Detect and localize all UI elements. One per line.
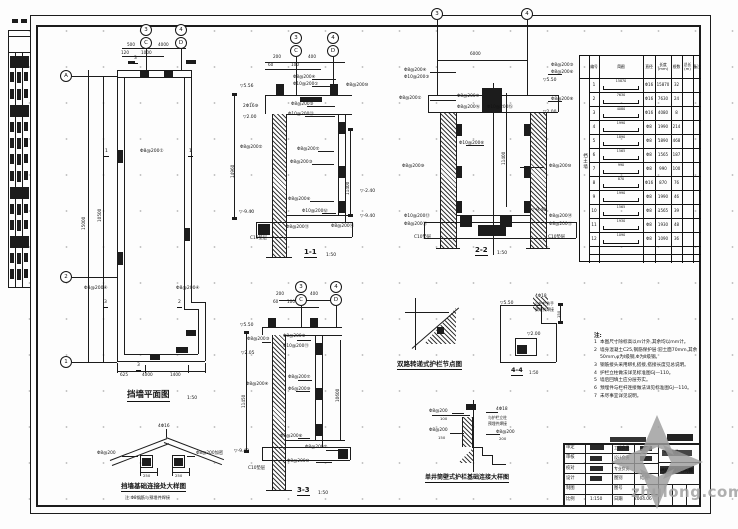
annotation-text: 625 bbox=[120, 373, 128, 377]
decor-line bbox=[8, 287, 31, 288]
decor-line bbox=[17, 72, 22, 83]
decor-line bbox=[256, 237, 352, 238]
annotation-text: 1000 bbox=[141, 51, 152, 55]
annotation-text: Φ8@200⑭ bbox=[331, 225, 354, 229]
rebar-length: 870 bbox=[655, 176, 671, 190]
decor-line bbox=[310, 201, 334, 202]
annotation-text: Φ8@200④ bbox=[404, 69, 426, 73]
decor-line bbox=[198, 309, 199, 354]
annotation-text: 11400 bbox=[346, 182, 350, 195]
decor-line bbox=[256, 222, 257, 237]
decor-line: 墙身混凝土C25,钢筋保护层:迎土面70mm,其余50mm,φ为Ⅰ级钢,Φ为Ⅱ级… bbox=[600, 348, 698, 362]
annotation-text: Φ8@200④ bbox=[176, 287, 200, 292]
annotation-text: 100 bbox=[440, 417, 447, 421]
annotation-text: 1 bbox=[104, 150, 109, 157]
annotation-text: 预埋件焊接 bbox=[488, 422, 507, 426]
decor-line bbox=[590, 476, 602, 481]
elevation-marker: ▽-9.40 bbox=[234, 450, 249, 455]
decor-line bbox=[30, 30, 31, 288]
decor-line bbox=[460, 216, 472, 227]
decor-line bbox=[117, 70, 118, 361]
decor-line bbox=[558, 303, 563, 306]
decor-line bbox=[478, 225, 506, 236]
annotation-text: Φ8@200⑩ bbox=[346, 84, 368, 88]
decor-line bbox=[279, 307, 319, 308]
decor-line bbox=[172, 468, 173, 476]
decor-line bbox=[456, 201, 462, 213]
watermark-text: zhulong.com bbox=[631, 483, 738, 501]
decor-line bbox=[556, 323, 557, 362]
decor-line bbox=[440, 112, 441, 248]
decor-line bbox=[589, 246, 701, 247]
annotation-text: Φ10@200⑪ bbox=[288, 113, 314, 117]
decor-line bbox=[482, 447, 483, 455]
decor-line bbox=[24, 138, 29, 147]
rebar-length: 1930 bbox=[655, 218, 671, 232]
decor-line bbox=[117, 361, 205, 362]
decor-line bbox=[450, 433, 464, 434]
annotation-text: Φ8@200② bbox=[240, 146, 262, 150]
rebar-sketch: 870 bbox=[599, 176, 643, 190]
rebar-total bbox=[682, 162, 693, 176]
annotation-text: 200 bbox=[276, 292, 284, 296]
decor-line bbox=[205, 363, 206, 373]
annotation-text: 2 bbox=[177, 301, 182, 308]
elevation-marker: ▽2.00 bbox=[527, 333, 540, 338]
rebar-diameter: Φ8 bbox=[643, 148, 655, 162]
grid-bubble: 3 bbox=[431, 8, 443, 20]
decor-line bbox=[350, 447, 351, 460]
decor-line bbox=[186, 60, 196, 64]
tb-label: 审核 bbox=[566, 456, 575, 460]
annotation-text: Φ8@200 bbox=[429, 429, 448, 433]
rebar-total bbox=[682, 218, 693, 232]
elevation-marker: ▽5.50 bbox=[500, 302, 513, 307]
row-number: 1 bbox=[589, 78, 599, 92]
decor-line bbox=[530, 112, 546, 248]
decor-line bbox=[140, 70, 149, 77]
section-1-1-caption: 1-1 bbox=[304, 249, 317, 258]
table-header: 简图 bbox=[599, 56, 643, 78]
rebar-length: 1990 bbox=[655, 190, 671, 204]
annotation-text: Φ8@200⑤ bbox=[291, 103, 313, 107]
grid-bubble: A bbox=[60, 70, 72, 82]
decor-line bbox=[124, 77, 125, 354]
decor-line bbox=[17, 89, 22, 100]
elevation-marker: ▽5.50 bbox=[543, 79, 556, 84]
decor-line bbox=[24, 72, 29, 81]
decor-line bbox=[272, 237, 273, 257]
rebar-diameter: Φ8 bbox=[643, 190, 655, 204]
decor-line bbox=[10, 253, 15, 263]
rebar-count: 24 bbox=[671, 92, 682, 106]
grid-bubble: 1 bbox=[60, 356, 72, 368]
decor-line bbox=[437, 20, 438, 95]
decor-line bbox=[312, 79, 336, 80]
elevation-marker: ▽2.00 bbox=[543, 111, 556, 116]
annotation-text: 14960 bbox=[231, 165, 235, 178]
decor-line bbox=[17, 171, 22, 182]
decor-line bbox=[318, 151, 334, 152]
annotation-text: Φ10@200⑧ bbox=[459, 142, 484, 146]
decor-line bbox=[315, 424, 322, 436]
decor-line bbox=[10, 236, 29, 248]
decor-line bbox=[142, 458, 151, 466]
decor-line bbox=[330, 84, 338, 95]
rebar-count: 76 bbox=[671, 176, 682, 190]
rebar-sketch: 990 bbox=[599, 162, 643, 176]
decor-line bbox=[338, 201, 345, 213]
decor-line bbox=[286, 215, 352, 216]
table-header: 根数 bbox=[671, 56, 682, 78]
note-item: 5墙后回填土应分层夯实。 bbox=[594, 378, 698, 385]
decor-line: 1890 bbox=[599, 135, 643, 139]
decor-line bbox=[174, 458, 183, 466]
decor-line bbox=[500, 362, 556, 363]
annotation-text: 1400 bbox=[170, 373, 181, 377]
notes-block: 注: 1本图尺寸除标高以m计外,其余均以mm计。2墙身混凝土C25,钢筋保护层:… bbox=[594, 331, 698, 401]
decor-line bbox=[524, 124, 530, 136]
decor-line bbox=[17, 138, 22, 149]
decor-line bbox=[603, 170, 639, 174]
decor-line bbox=[558, 321, 563, 324]
decor-line bbox=[10, 105, 29, 117]
annotation-text: Φ8@200⑫ bbox=[549, 223, 572, 227]
annotation-text: 4000 bbox=[158, 43, 169, 47]
table-header: 长度(mm) bbox=[655, 56, 671, 78]
rebar-count: 100 bbox=[671, 162, 682, 176]
decor-line bbox=[157, 468, 158, 476]
annotation-text: Φ8@200⑨ bbox=[402, 165, 424, 169]
decor-line bbox=[21, 19, 27, 23]
decor-line bbox=[24, 253, 29, 262]
decor-line bbox=[17, 154, 22, 165]
decor-line bbox=[530, 112, 531, 248]
decor-line bbox=[456, 166, 462, 178]
decor-line: 1990 bbox=[599, 191, 643, 195]
decor-line bbox=[17, 122, 22, 133]
annotation-text: Φ8@200③ bbox=[247, 338, 269, 342]
grid-bubble: 3 bbox=[290, 32, 302, 44]
decor-line bbox=[117, 77, 191, 78]
rebar-diameter: Φ8 bbox=[643, 134, 655, 148]
rebar-total bbox=[682, 120, 693, 134]
annotation-text: Φ8@200④ bbox=[293, 76, 315, 80]
annotation-text: 10600 bbox=[336, 389, 340, 402]
rebar-sketch: 1565 bbox=[599, 148, 643, 162]
rebar-diameter: Φ16 bbox=[643, 176, 655, 190]
decor-line bbox=[482, 455, 492, 456]
annotation-text: Φ8@200⑥ bbox=[280, 435, 302, 439]
decor-line bbox=[191, 302, 205, 303]
annotation-text: Φ8@200⑦ bbox=[288, 376, 310, 380]
row-number: 12 bbox=[589, 232, 599, 246]
rebar-total bbox=[682, 176, 693, 190]
section-2-2-caption: 2-2 bbox=[475, 247, 488, 256]
decor-line bbox=[520, 167, 544, 168]
decor-line: 870 bbox=[599, 177, 643, 181]
rebar-total bbox=[682, 92, 693, 106]
rebar-total bbox=[682, 232, 693, 246]
decor-line bbox=[186, 330, 196, 336]
rebar-count: 468 bbox=[671, 134, 682, 148]
note-item: 4护栏立柱做法详见标准图GJ—110。 bbox=[594, 371, 698, 378]
annotation-text: Φ8@200⑧ bbox=[551, 98, 573, 102]
annotation-text: 3 bbox=[103, 301, 108, 308]
decor-line bbox=[262, 447, 263, 460]
rebar-sketch: 7630 bbox=[599, 92, 643, 106]
decor-line bbox=[10, 220, 15, 230]
annotation-text: 15000 bbox=[82, 217, 86, 230]
decor-line bbox=[12, 19, 18, 23]
annotation-text: 11400 bbox=[502, 152, 506, 165]
grid-bubble: 4 bbox=[327, 32, 339, 44]
decor-line bbox=[164, 70, 173, 77]
decor-line bbox=[266, 490, 292, 491]
decor-line bbox=[348, 214, 353, 217]
decor-line bbox=[603, 198, 639, 202]
note-item: 1本图尺寸除标高以m计外,其余均以mm计。 bbox=[594, 340, 698, 347]
decor-line bbox=[181, 49, 182, 70]
decor-line: 7630 bbox=[599, 93, 643, 97]
decor-line bbox=[336, 306, 337, 327]
annotation-text: Φ8@200 bbox=[429, 410, 448, 414]
rebar-length: 1090 bbox=[655, 232, 671, 246]
row-number: 10 bbox=[589, 204, 599, 218]
annotation-text: Φ10@200⑮ bbox=[487, 106, 513, 110]
annotation-text: 200 bbox=[499, 437, 506, 441]
decor-line bbox=[15, 52, 16, 287]
grid-bubble: C bbox=[140, 37, 152, 49]
decor-line bbox=[262, 327, 263, 335]
annotation-text: 预埋件焊接 bbox=[535, 308, 554, 312]
decor-line bbox=[517, 345, 527, 354]
rebar-total bbox=[682, 190, 693, 204]
rebar-count: 32 bbox=[671, 78, 682, 92]
annotation-text: 150 bbox=[438, 436, 445, 440]
rebar-schedule-table: 挡土墙 编号简图直径长度(mm)根数总长(m)备注115870Φ16158703… bbox=[579, 55, 700, 262]
row-number: 3 bbox=[589, 106, 599, 120]
tb-label: 设计 bbox=[566, 477, 575, 481]
decor-line bbox=[24, 269, 29, 278]
decor-line bbox=[265, 62, 345, 63]
annotation-text: 100 bbox=[291, 63, 299, 67]
annotation-text: 120 bbox=[121, 51, 129, 55]
annotation-text: Φ8@200⑭ bbox=[549, 215, 572, 219]
notes-header: 注: bbox=[594, 331, 698, 339]
annotation-text: 4Φ16 bbox=[158, 425, 170, 429]
decor-line bbox=[10, 72, 15, 82]
grid-bubble: 3 bbox=[140, 24, 152, 36]
annotation-text: 3 bbox=[136, 364, 141, 371]
grid-bubble: C bbox=[290, 45, 302, 57]
decor-line bbox=[140, 468, 141, 476]
detail-4-4-caption: 4-4 bbox=[511, 367, 523, 376]
decor-line bbox=[150, 355, 160, 360]
plan-scale: 1:50 bbox=[187, 397, 197, 402]
annotation-text: 200 bbox=[273, 55, 281, 59]
decor-line bbox=[10, 138, 15, 148]
decor-line bbox=[122, 456, 138, 457]
row-number: 8 bbox=[589, 176, 599, 190]
elevation-marker: ▽2.00 bbox=[243, 116, 256, 121]
decor-line bbox=[466, 404, 476, 410]
rebar-length: 1990 bbox=[655, 120, 671, 134]
decor-line bbox=[272, 335, 273, 490]
decor-line bbox=[17, 269, 22, 280]
decor-line bbox=[430, 72, 456, 73]
elevation-marker: ▽5.56 bbox=[240, 85, 253, 90]
decor-line: 预埋件与栏杆连接做法详见标准图GJ—110。 bbox=[600, 386, 692, 393]
decor-line bbox=[350, 130, 351, 217]
decor-line bbox=[345, 114, 346, 222]
row-number: 6 bbox=[589, 148, 599, 162]
decor-line bbox=[258, 224, 270, 235]
decor-line: 未尽事宜详见说明。 bbox=[600, 394, 641, 401]
rebar-length: 1890 bbox=[655, 134, 671, 148]
tb-label: 制图 bbox=[566, 487, 575, 491]
decor-line bbox=[524, 201, 530, 213]
rebar-sketch: 15870 bbox=[599, 78, 643, 92]
rebar-diameter: Φ16 bbox=[643, 92, 655, 106]
decor-line bbox=[603, 184, 639, 188]
annotation-text: 4Φ18 bbox=[496, 408, 508, 412]
grid-bubble: C bbox=[295, 294, 307, 306]
decor-line bbox=[472, 417, 473, 447]
annotation-text: Φ8@200⑪ bbox=[404, 223, 427, 227]
decor-line bbox=[24, 220, 29, 229]
decor-line bbox=[338, 166, 345, 178]
grid-bubble: D bbox=[327, 45, 339, 57]
decor-line bbox=[10, 122, 15, 132]
annotation-text: Φ8@200⑤ bbox=[551, 64, 573, 68]
tb-label: 校对 bbox=[566, 467, 575, 471]
rebar-total bbox=[682, 78, 693, 92]
decor-line bbox=[124, 354, 198, 355]
decor-line bbox=[36, 25, 700, 27]
rebar-count: 48 bbox=[671, 218, 682, 232]
decor-line bbox=[415, 298, 416, 350]
decor-line bbox=[276, 84, 284, 95]
decor-line bbox=[232, 217, 237, 220]
decor-line: 1930 bbox=[599, 219, 643, 223]
detail-left-caption: 挡墙基础连接处大样图 bbox=[121, 483, 186, 492]
annotation-text: Φ8@200① bbox=[140, 150, 164, 155]
annotation-text: 10500 bbox=[98, 209, 102, 222]
decor-line bbox=[430, 100, 456, 101]
decor-line bbox=[36, 25, 38, 506]
decor-line bbox=[185, 228, 190, 241]
decor-line bbox=[472, 447, 482, 448]
rebar-total bbox=[682, 106, 693, 120]
rebar-total bbox=[682, 148, 693, 162]
decor-line bbox=[103, 77, 104, 362]
decor-line bbox=[590, 445, 604, 450]
row-number: 11 bbox=[589, 218, 599, 232]
decor-line bbox=[8, 36, 31, 37]
decor-line bbox=[187, 456, 195, 457]
table-header: 直径 bbox=[643, 56, 655, 78]
detail-node-caption: 双路转递式护栏节点图 bbox=[397, 361, 462, 370]
plan-view bbox=[60, 20, 240, 410]
decor-line: 15870 bbox=[599, 79, 643, 83]
decor-line bbox=[272, 114, 273, 257]
rebar-diameter: Φ8 bbox=[643, 120, 655, 134]
rebar-length: 4080 bbox=[655, 106, 671, 120]
decor-line: 护栏立柱做法详见标准图GJ—110。 bbox=[600, 371, 673, 378]
row-number: 9 bbox=[589, 190, 599, 204]
decor-line: 990 bbox=[599, 163, 643, 167]
annotation-text: 6000 bbox=[470, 52, 481, 56]
elevation-marker: ▽-9.40 bbox=[531, 209, 546, 214]
decor-line bbox=[603, 114, 639, 118]
grid-bubble: 3 bbox=[295, 281, 307, 293]
annotation-text: 400 bbox=[310, 292, 318, 296]
decor-line bbox=[500, 305, 501, 362]
annotation-text: 1:50 bbox=[497, 252, 507, 257]
decor-line bbox=[266, 257, 292, 258]
decor-line bbox=[166, 429, 167, 437]
annotation-text: 500 bbox=[127, 43, 135, 47]
grid-bubble: D bbox=[175, 37, 187, 49]
decor-line bbox=[189, 468, 190, 476]
decor-line bbox=[473, 400, 474, 472]
annotation-text: 11450 bbox=[242, 395, 246, 408]
annotation-text: 400 bbox=[308, 55, 316, 59]
decor-line: 4080 bbox=[599, 107, 643, 111]
annotation-text: C10垫层 bbox=[414, 236, 431, 240]
decor-line bbox=[122, 48, 186, 49]
decor-line bbox=[286, 237, 287, 257]
decor-line bbox=[118, 150, 123, 163]
decor-line bbox=[315, 343, 322, 355]
decor-line bbox=[456, 124, 462, 136]
annotation-text: 60 bbox=[268, 63, 273, 67]
decor-line bbox=[256, 222, 352, 223]
decor-line: 本图尺寸除标高以m计外,其余均以mm计。 bbox=[600, 340, 688, 347]
decor-line bbox=[436, 248, 460, 249]
annotation-text: Φ8@200⑥ bbox=[551, 71, 573, 75]
decor-line bbox=[24, 171, 29, 180]
grid-bubble: 4 bbox=[330, 281, 342, 293]
decor-line bbox=[72, 76, 117, 77]
grid-bubble: 4 bbox=[521, 8, 533, 20]
annotation-text: Φ8@200加密 bbox=[196, 452, 223, 456]
annotation-text: Φ8@200⑦ bbox=[457, 95, 479, 99]
rebar-count: 36 bbox=[671, 232, 682, 246]
decor-line bbox=[30, 15, 711, 16]
rebar-total bbox=[682, 134, 693, 148]
table-header: 总长(m) bbox=[682, 56, 693, 78]
decor-line bbox=[272, 114, 286, 257]
decor-line bbox=[8, 52, 31, 53]
decor-line bbox=[316, 462, 332, 463]
decor-line bbox=[17, 253, 22, 264]
decor-line bbox=[603, 226, 639, 230]
decor-line: 1090 bbox=[599, 233, 643, 237]
rebar-length: 7630 bbox=[655, 92, 671, 106]
decor-line: 1565 bbox=[599, 149, 643, 153]
decor-line bbox=[176, 347, 188, 353]
decor-line bbox=[611, 445, 651, 479]
grid-bubble: 2 bbox=[60, 271, 72, 283]
decor-line bbox=[268, 318, 276, 327]
elevation-marker: ▽2.05 bbox=[241, 352, 254, 357]
decor-line bbox=[326, 450, 340, 451]
rebar-count: 214 bbox=[671, 120, 682, 134]
annotation-text: 250 bbox=[143, 474, 150, 478]
grid-bubble: D bbox=[330, 294, 342, 306]
